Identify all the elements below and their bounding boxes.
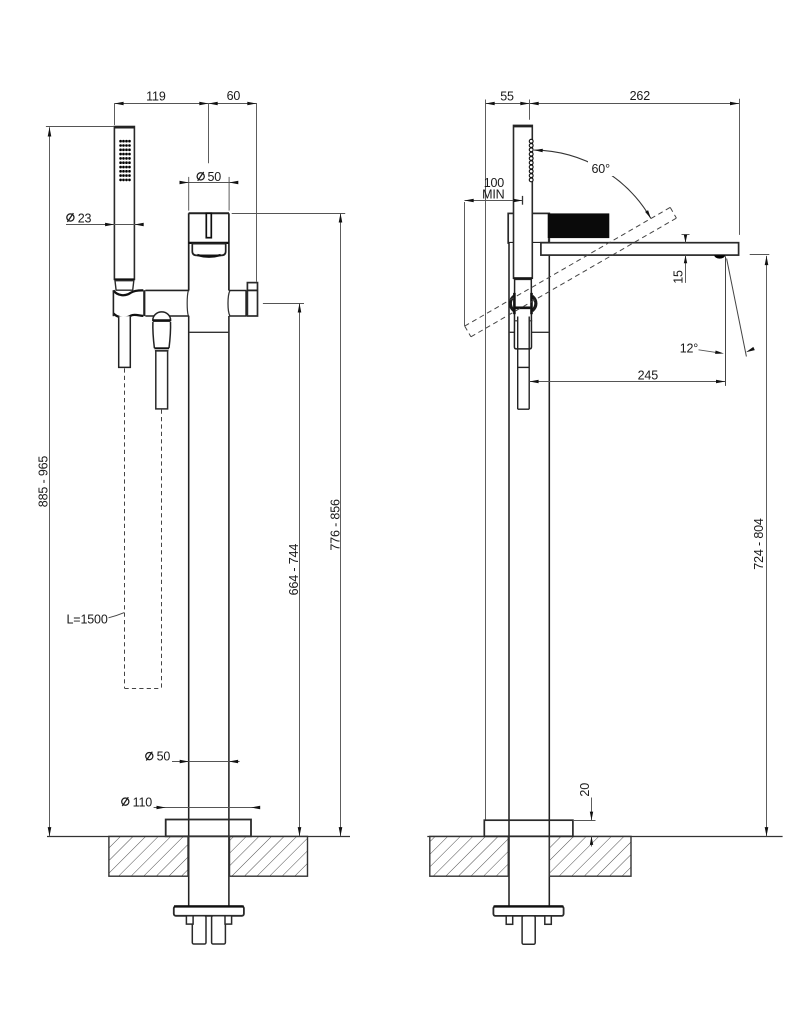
svg-text:724 - 804: 724 - 804 xyxy=(752,518,766,570)
svg-text:776 - 856: 776 - 856 xyxy=(328,499,342,551)
svg-text:119: 119 xyxy=(146,89,166,103)
svg-text:664 - 744: 664 - 744 xyxy=(287,544,301,596)
svg-text:L=1500: L=1500 xyxy=(67,613,108,627)
svg-text:50: 50 xyxy=(157,750,171,764)
svg-text:60: 60 xyxy=(227,89,241,103)
svg-text:23: 23 xyxy=(78,211,92,225)
svg-text:262: 262 xyxy=(630,89,651,103)
svg-text:245: 245 xyxy=(638,369,659,383)
svg-text:55: 55 xyxy=(500,89,514,103)
svg-text:15: 15 xyxy=(672,270,686,284)
svg-text:20: 20 xyxy=(578,783,592,797)
svg-text:50: 50 xyxy=(208,170,222,184)
svg-text:12°: 12° xyxy=(680,342,699,356)
svg-text:110: 110 xyxy=(133,795,153,809)
svg-text:60°: 60° xyxy=(592,162,611,176)
svg-text:MIN: MIN xyxy=(482,188,505,202)
svg-text:885 - 965: 885 - 965 xyxy=(37,456,51,508)
